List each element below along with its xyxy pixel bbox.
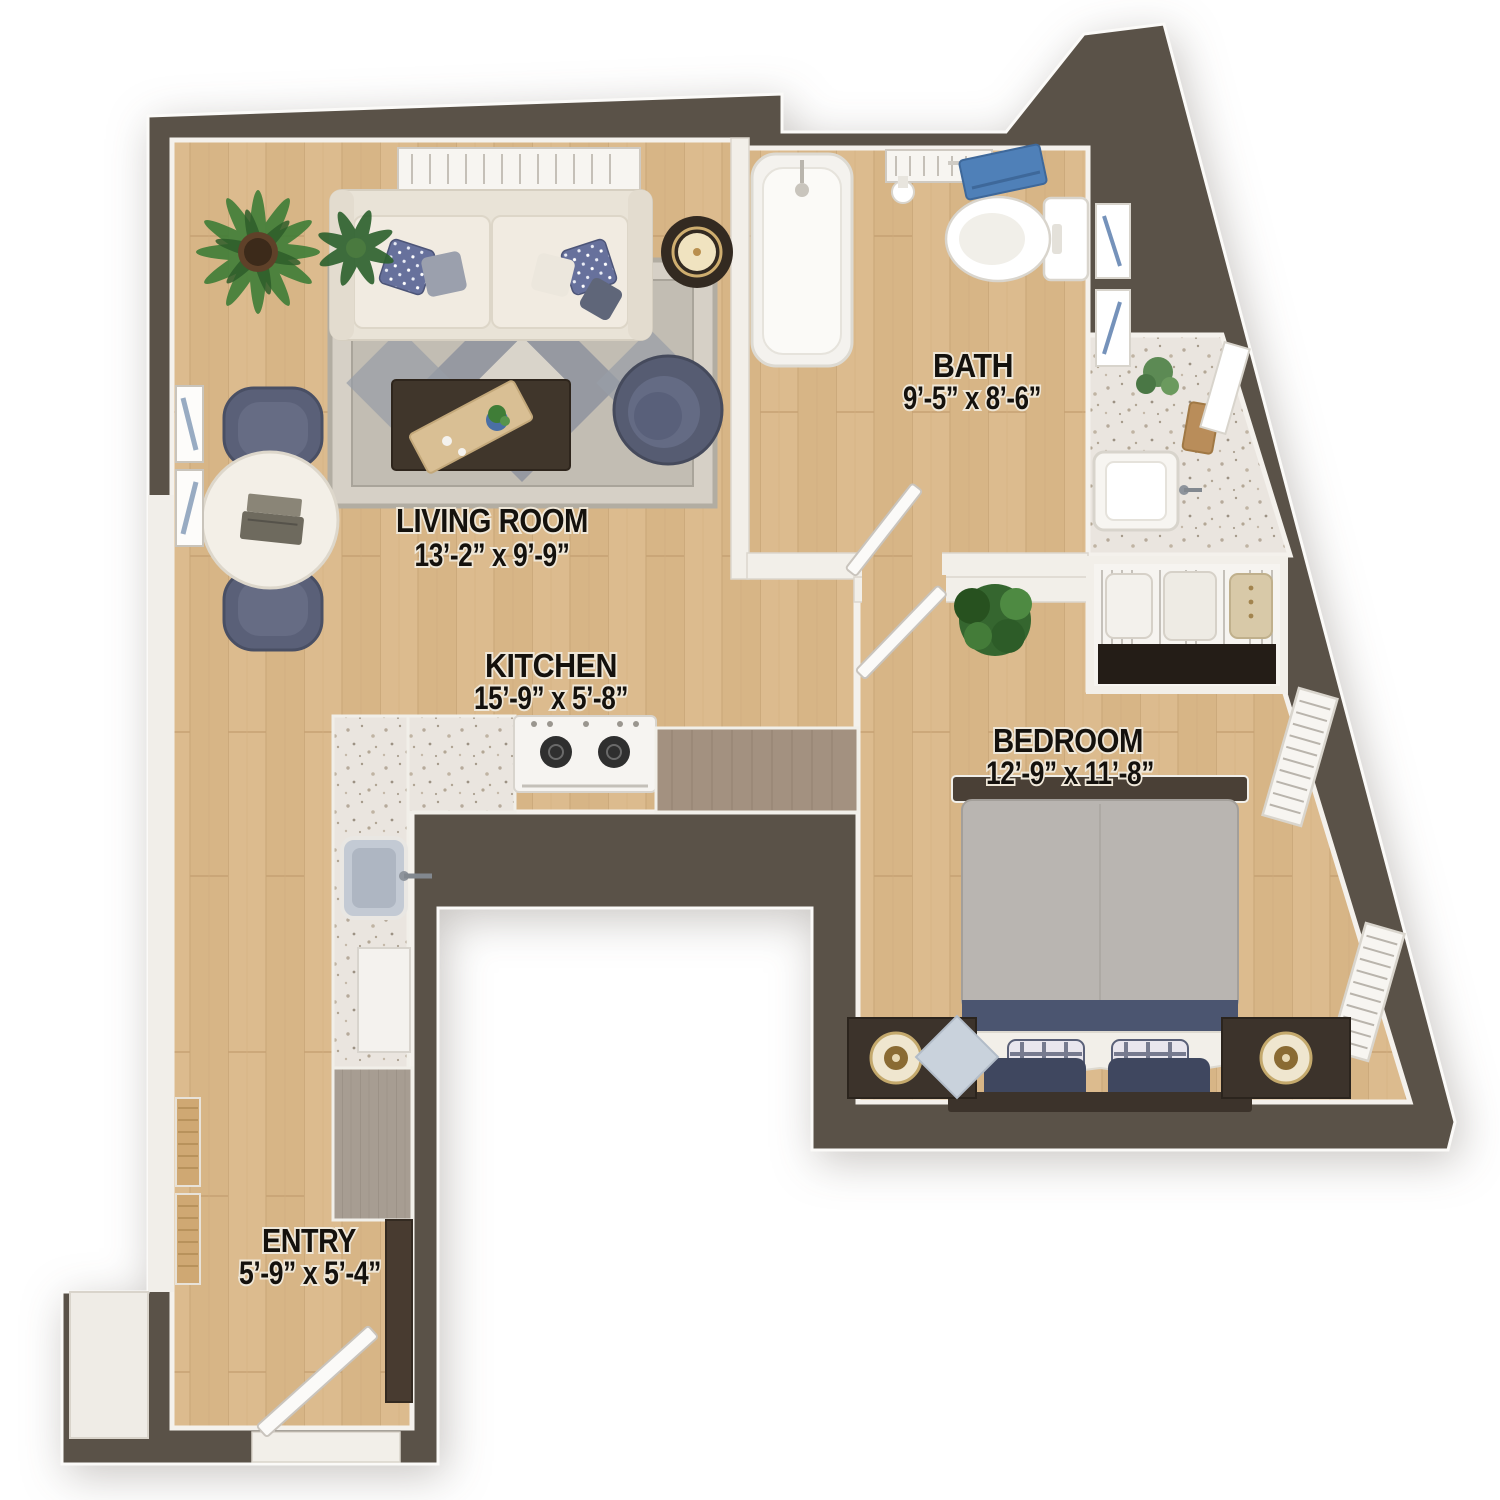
label-living-room: LIVING ROOM 13’-2” x 9’-9” <box>396 502 588 573</box>
entry-threshold <box>252 1432 400 1462</box>
svg-text:15’-9” x 5’-8”: 15’-9” x 5’-8” <box>474 680 628 716</box>
closet <box>1090 560 1284 690</box>
armchair <box>614 356 722 464</box>
floor-plan: LIVING ROOM 13’-2” x 9’-9” KITCHEN 15’-9… <box>0 0 1500 1500</box>
dishwasher <box>358 948 410 1052</box>
closet-floor-dark <box>1098 644 1276 684</box>
coffee-table <box>392 380 570 474</box>
kitchen-counter-wood <box>656 728 858 812</box>
left-wall-light-face <box>148 495 174 1292</box>
floor-plan-canvas: LIVING ROOM 13’-2” x 9’-9” KITCHEN 15’-9… <box>0 0 1500 1500</box>
svg-text:BEDROOM: BEDROOM <box>993 722 1143 759</box>
svg-text:BATH: BATH <box>933 347 1013 384</box>
label-kitchen: KITCHEN 15’-9” x 5’-8” <box>474 647 628 716</box>
bathtub <box>752 154 852 366</box>
svg-text:13’-2” x 9’-9”: 13’-2” x 9’-9” <box>415 537 570 573</box>
entry-side-cabinet <box>386 1220 412 1402</box>
nightstand <box>1222 1018 1350 1098</box>
laptop <box>240 493 306 545</box>
bed-headboard <box>948 1092 1252 1112</box>
living-bath-partition <box>731 138 749 579</box>
svg-text:9’-5” x 8’-6”: 9’-5” x 8’-6” <box>903 380 1041 416</box>
sofa <box>330 190 652 340</box>
svg-text:KITCHEN: KITCHEN <box>485 647 617 684</box>
svg-text:LIVING ROOM: LIVING ROOM <box>396 502 588 539</box>
range <box>514 716 656 792</box>
toilet <box>946 197 1088 281</box>
floor-lamp <box>661 216 733 288</box>
ac-vent <box>398 148 640 190</box>
kitchen-cabinet <box>333 1068 412 1220</box>
label-bedroom: BEDROOM 12’-9” x 11’-8” <box>986 722 1154 791</box>
entry-step-wall <box>70 1292 148 1438</box>
svg-text:5’-9” x 5’-4”: 5’-9” x 5’-4” <box>239 1255 381 1291</box>
svg-text:12’-9” x 11’-8”: 12’-9” x 11’-8” <box>986 755 1154 791</box>
closet-clothes <box>1106 572 1272 640</box>
svg-text:ENTRY: ENTRY <box>262 1222 356 1259</box>
